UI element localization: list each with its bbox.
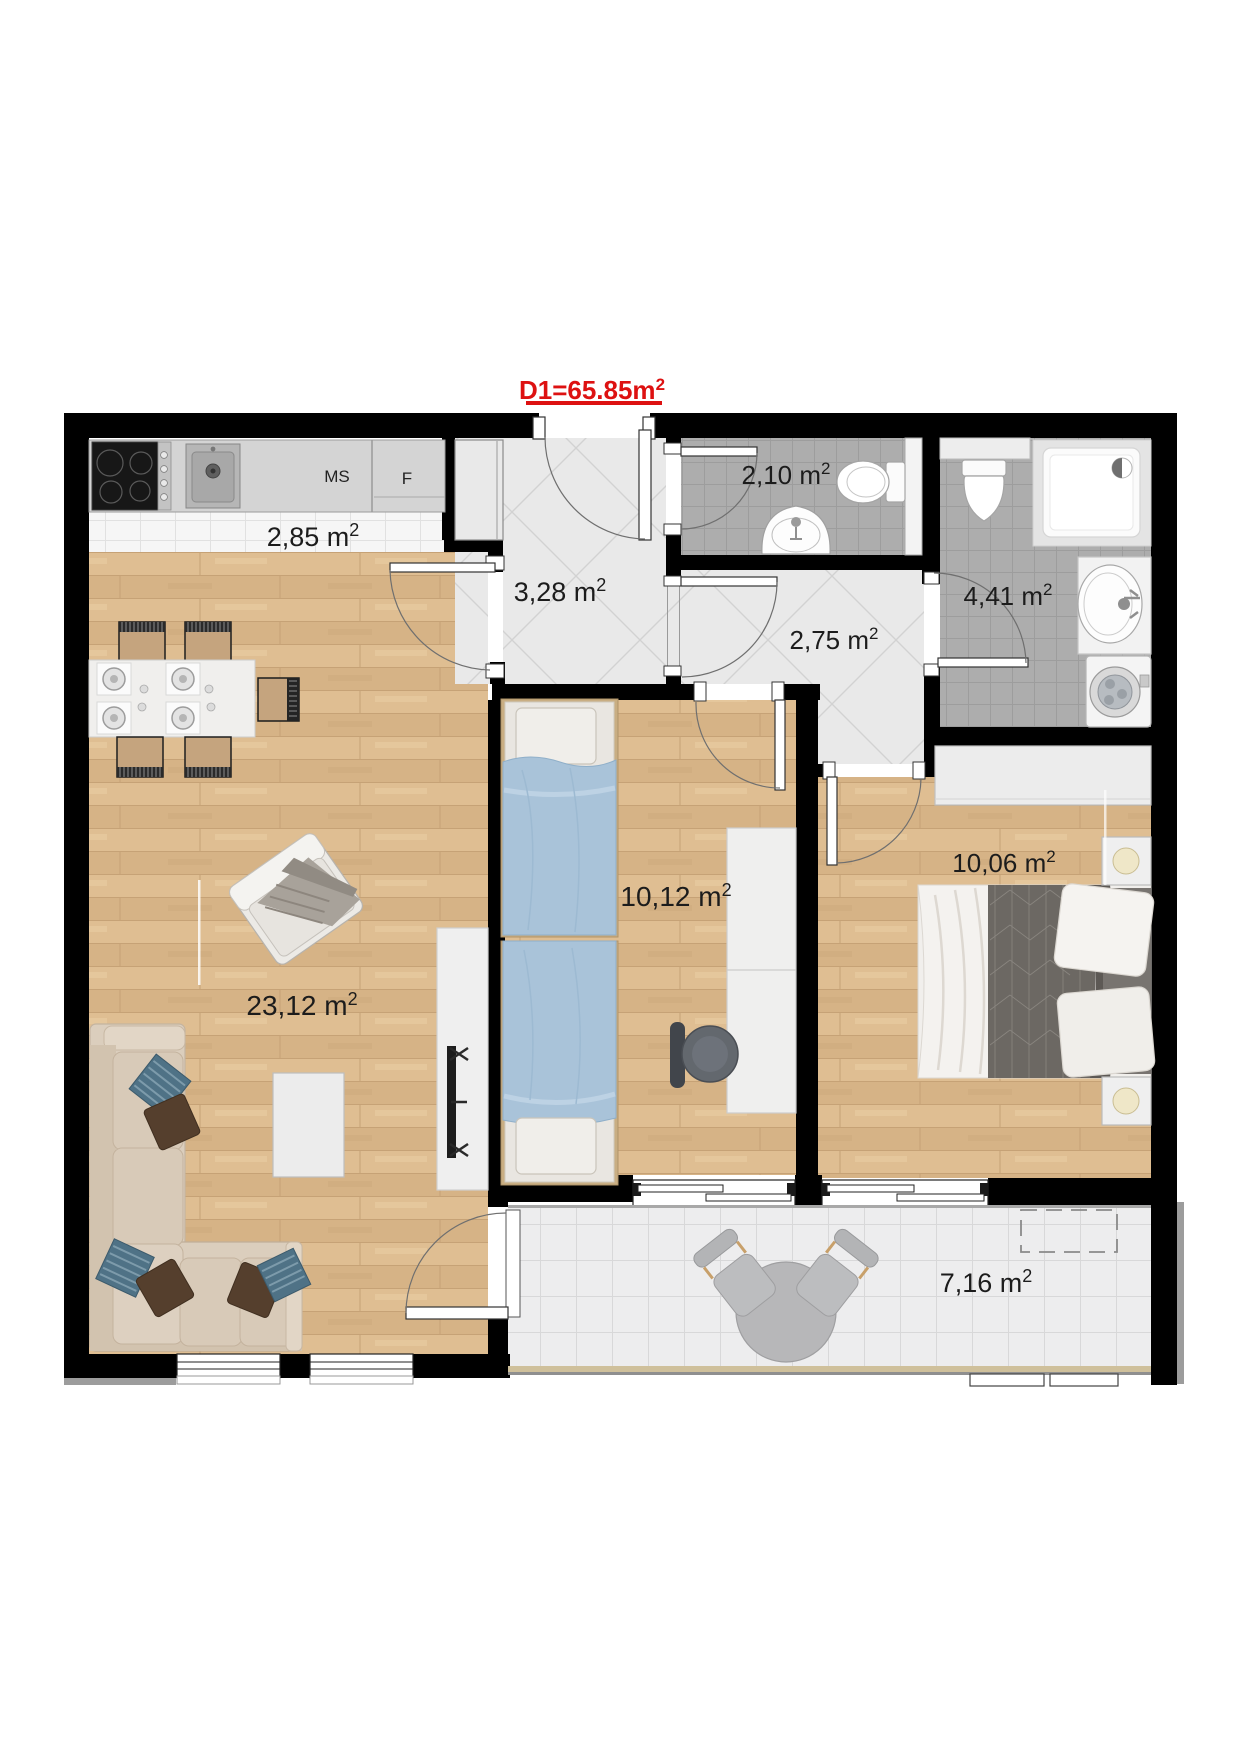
svg-text:2,10 m2: 2,10 m2 <box>742 459 831 490</box>
svg-text:3,28 m2: 3,28 m2 <box>514 575 607 607</box>
svg-text:10,12 m2: 10,12 m2 <box>620 880 731 912</box>
svg-text:10,06 m2: 10,06 m2 <box>952 847 1055 878</box>
svg-text:F: F <box>402 469 412 488</box>
svg-text:23,12 m2: 23,12 m2 <box>246 989 357 1021</box>
svg-text:MS: MS <box>324 467 350 486</box>
svg-text:7,16 m2: 7,16 m2 <box>940 1266 1033 1298</box>
svg-text:4,41 m2: 4,41 m2 <box>964 580 1053 611</box>
svg-text:D1=65.85m2: D1=65.85m2 <box>519 375 665 405</box>
svg-text:2,75 m2: 2,75 m2 <box>790 624 879 655</box>
svg-text:2,85 m2: 2,85 m2 <box>267 520 360 552</box>
